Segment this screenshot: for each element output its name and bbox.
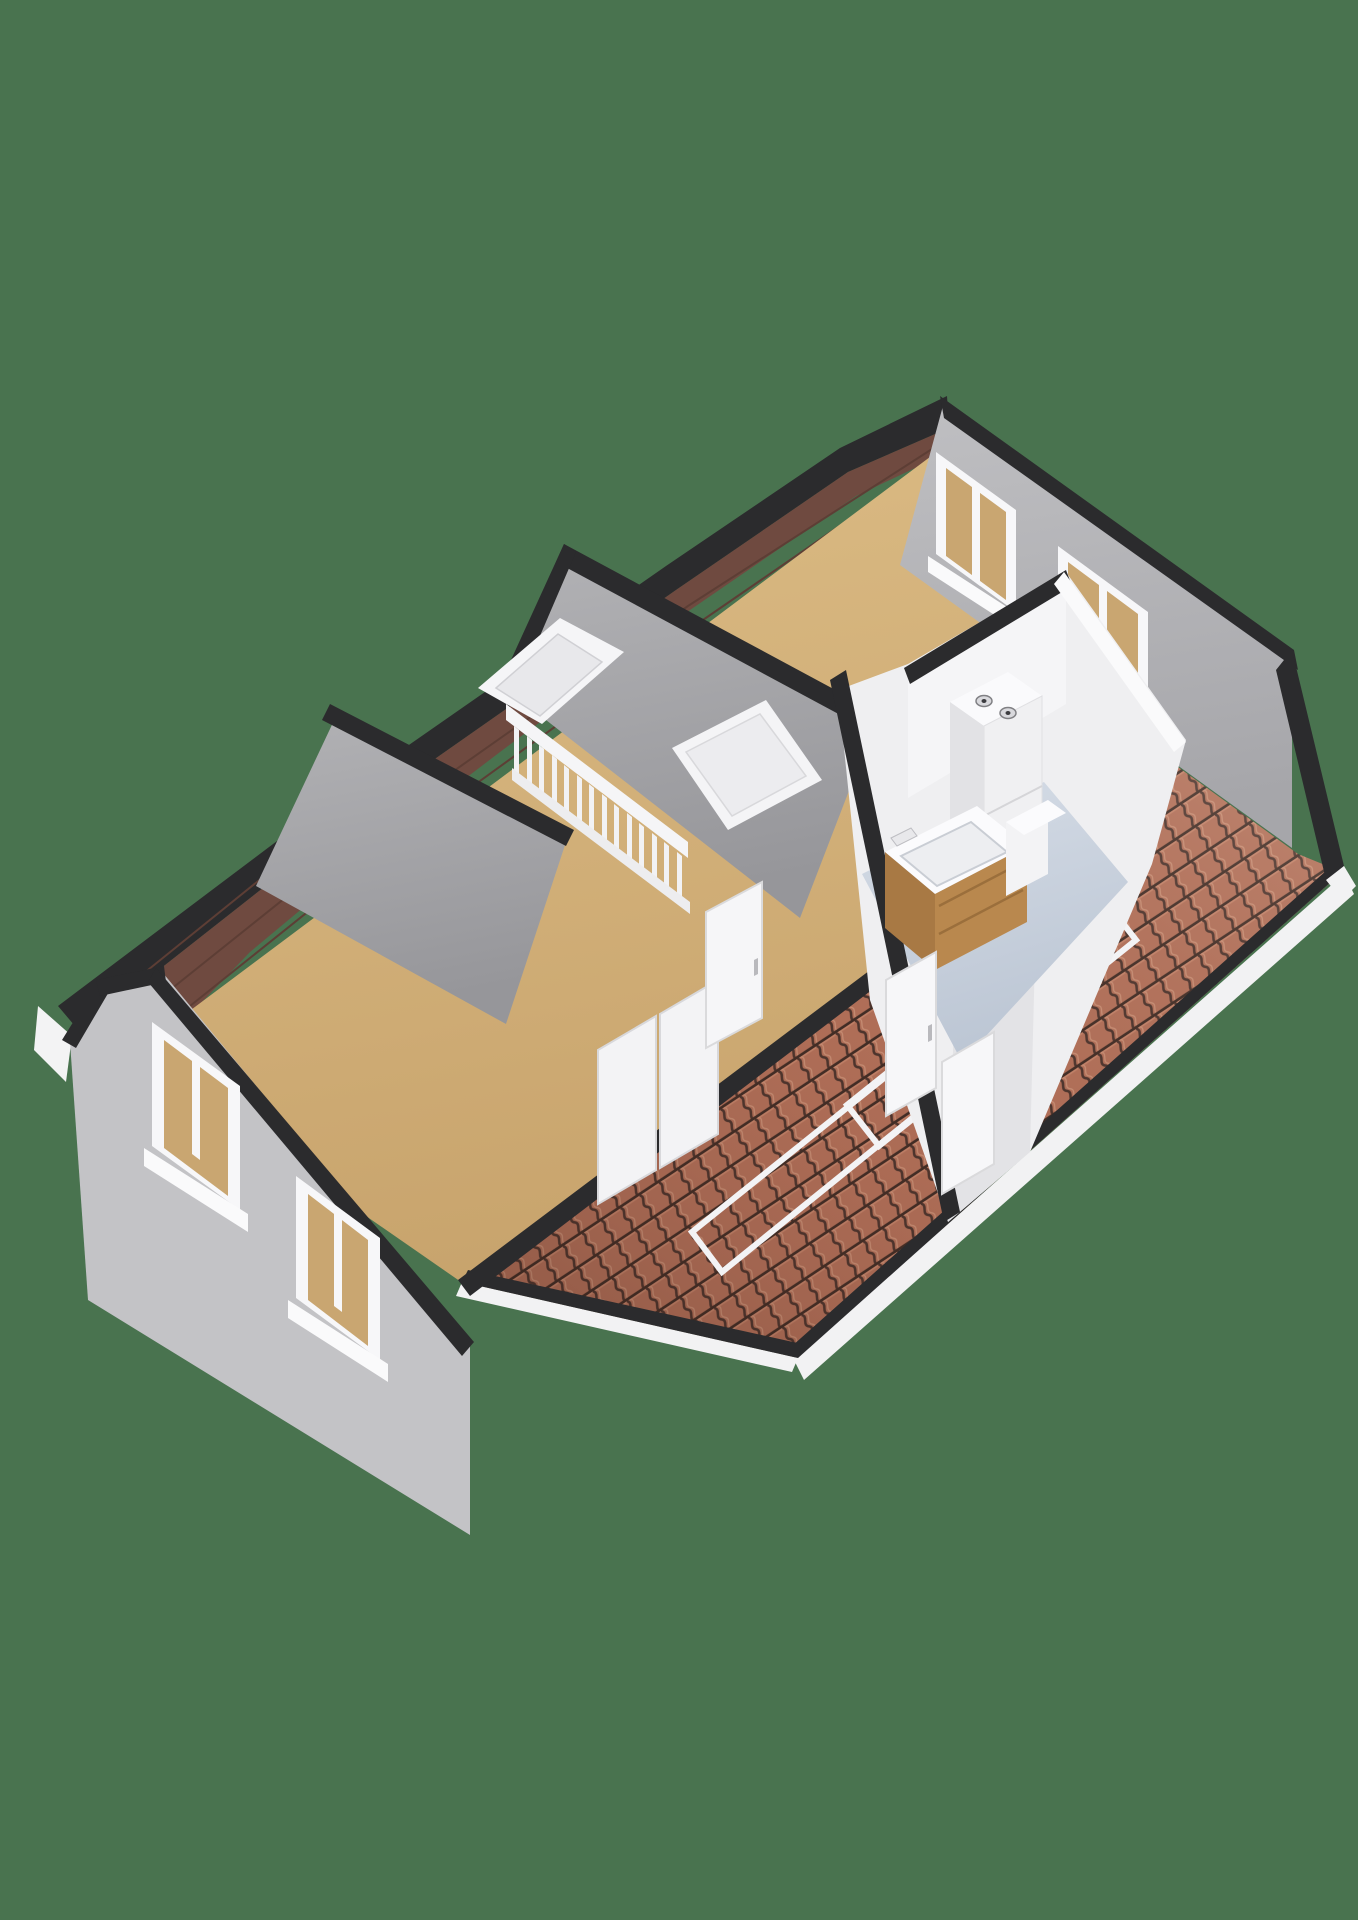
stair-baluster xyxy=(514,726,519,776)
stair-baluster xyxy=(564,765,569,815)
window-mullion xyxy=(334,1208,342,1312)
door-handle xyxy=(928,1024,932,1042)
stair-baluster xyxy=(527,736,532,786)
window-mullion xyxy=(972,486,980,586)
boiler-vent-dot xyxy=(982,699,987,703)
floorplan-stage xyxy=(0,0,1358,1920)
window-mullion xyxy=(192,1056,200,1160)
stair-baluster xyxy=(552,755,557,805)
boiler-vent-dot xyxy=(1006,711,1011,715)
stair-baluster xyxy=(539,745,544,795)
stair-baluster xyxy=(589,784,594,834)
room-door xyxy=(706,882,762,1048)
door-handle xyxy=(754,958,758,976)
floorplan-3d-view[interactable] xyxy=(0,0,1358,1920)
wardrobe-door xyxy=(598,1016,656,1204)
